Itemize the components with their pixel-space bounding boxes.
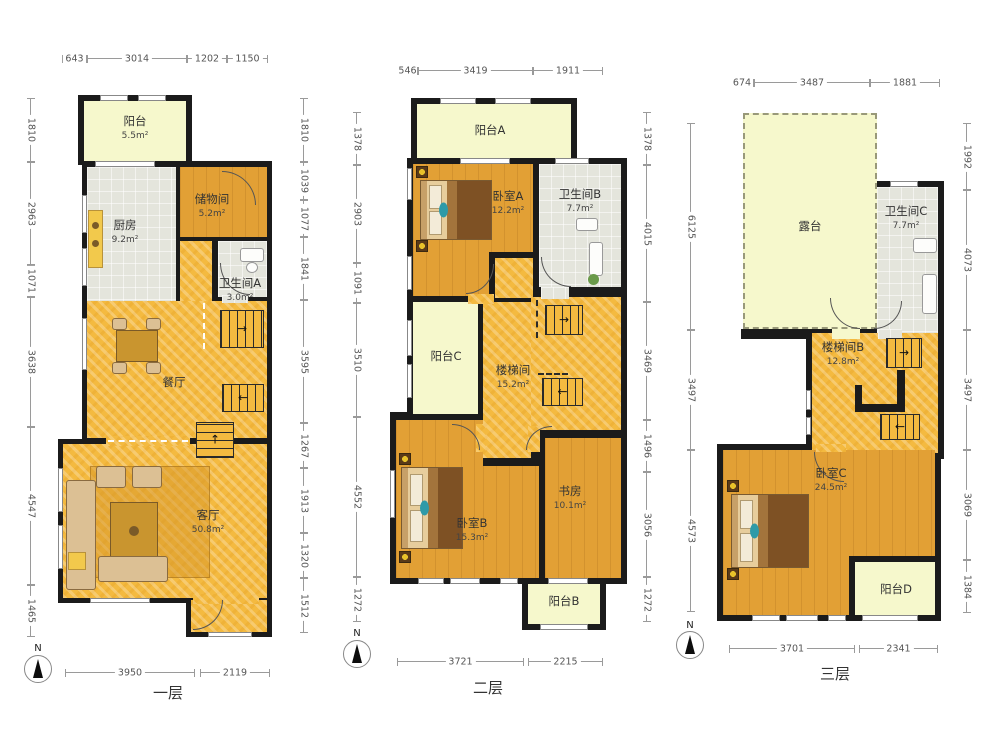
- room-area: 15.2m²: [496, 379, 531, 391]
- dim-value: 1841: [299, 253, 310, 283]
- floor-label-2: 二层: [473, 677, 503, 698]
- dim-value: 3497: [962, 375, 973, 405]
- dimension: 1881: [870, 82, 940, 83]
- dim-value: 1150: [232, 54, 262, 65]
- stairs-icon: →: [886, 338, 922, 368]
- wall-balcony-d-h: [849, 556, 935, 562]
- dimension: 2903: [356, 165, 357, 263]
- pillow-icon: [410, 510, 423, 542]
- bed-accent: [420, 501, 429, 516]
- dim-value: 3469: [642, 346, 653, 376]
- window: [390, 470, 395, 518]
- dim-value: 3595: [299, 346, 310, 376]
- dim-value: 4552: [352, 482, 363, 512]
- window: [407, 364, 412, 398]
- room-area: 7.7m²: [559, 203, 601, 215]
- dimension: 1810: [30, 98, 31, 162]
- dim-value: 1039: [299, 166, 310, 196]
- dimension: 3419: [418, 70, 533, 71]
- dimension: 1512: [303, 578, 304, 633]
- dim-value: 1465: [26, 596, 37, 626]
- window: [500, 578, 518, 584]
- room-name: 客厅: [192, 508, 224, 524]
- dimension: 1465: [30, 585, 31, 637]
- room-label-stairwell-f2: 楼梯间15.2m²: [496, 363, 531, 391]
- dimension: 643: [62, 58, 87, 59]
- dim-value: 3056: [642, 509, 653, 539]
- dim-value: 1272: [352, 584, 363, 614]
- room-label-balcony-b-f2: 阳台B: [549, 594, 580, 610]
- room-label-bath-a-f1: 卫生间A3.0m²: [219, 276, 261, 304]
- dimension: 3014: [87, 58, 187, 59]
- dim-value: 1810: [26, 115, 37, 145]
- wall-balcony-d-v: [849, 556, 855, 615]
- nightstand-icon: [727, 568, 739, 580]
- dim-value: 2119: [220, 668, 250, 679]
- window: [95, 161, 155, 167]
- room-label-terrace-f3: 露台: [799, 219, 822, 235]
- room-label-balcony-f1: 阳台5.5m²: [122, 114, 149, 142]
- dimension: 1039: [303, 162, 304, 200]
- dim-value: 546: [395, 66, 419, 77]
- armchair-icon: [96, 466, 126, 488]
- bed-blanket: [758, 495, 808, 567]
- dim-value: 2903: [352, 199, 363, 229]
- compass-n-label: N: [686, 620, 693, 631]
- dim-value: 1320: [299, 540, 310, 570]
- bed-headboard: [421, 181, 427, 239]
- stairs-arrow: ←: [543, 385, 582, 397]
- room-name: 阳台C: [430, 349, 461, 365]
- dim-value: 1378: [352, 123, 363, 153]
- bed-icon: [401, 467, 463, 549]
- dim-value: 3638: [26, 347, 37, 377]
- dimension: 6125: [690, 123, 691, 330]
- dim-value: 3950: [115, 668, 145, 679]
- compass-needle: [33, 659, 43, 678]
- window: [862, 615, 918, 621]
- dim-value: 1077: [299, 203, 310, 233]
- loveseat-icon: [98, 556, 168, 582]
- dimension: 2215: [528, 661, 603, 662]
- dim-value: 1881: [890, 78, 920, 89]
- dining-chair-icon: [112, 362, 127, 374]
- dimension: 3638: [30, 297, 31, 427]
- room-name: 卧室C: [815, 466, 847, 482]
- dim-value: 1810: [299, 115, 310, 145]
- stairs-icon: →: [220, 310, 264, 348]
- room-area: 15.3m²: [456, 532, 488, 544]
- dim-value: 1913: [299, 485, 310, 515]
- room-label-balcony-a-f2: 阳台A: [475, 123, 506, 139]
- corridor-f1: [180, 241, 212, 301]
- dimension: 1272: [646, 577, 647, 622]
- toilet-icon: [246, 262, 258, 273]
- dimension: 1077: [303, 200, 304, 237]
- dim-value: 1272: [642, 584, 653, 614]
- stairs-arrow: ↑: [197, 433, 233, 445]
- room-label-bath-b-f2: 卫生间B7.7m²: [559, 187, 601, 215]
- room-area: 9.2m²: [112, 234, 139, 246]
- room-name: 阳台A: [475, 123, 506, 139]
- dimension: 1841: [303, 237, 304, 300]
- toilet-icon: [240, 248, 264, 262]
- dim-value: 2963: [26, 198, 37, 228]
- dim-value: 3069: [962, 490, 973, 520]
- room-name: 露台: [799, 219, 822, 235]
- dim-value: 674: [730, 78, 754, 89]
- compass-needle: [352, 644, 362, 663]
- dimension: 3721: [397, 661, 524, 662]
- dimension: 1911: [533, 70, 603, 71]
- stairs-icon: ←: [222, 384, 264, 412]
- dimension: 3056: [646, 472, 647, 577]
- stairs-icon: ↑: [196, 422, 234, 458]
- dimension: 1320: [303, 533, 304, 578]
- dim-value: 1992: [962, 141, 973, 171]
- window: [828, 615, 846, 621]
- room-name: 阳台: [122, 114, 149, 130]
- dim-value: 2341: [883, 644, 913, 655]
- room-name: 储物间: [195, 192, 230, 208]
- room-label-bedroom-b-f2: 卧室B15.3m²: [456, 516, 488, 544]
- dimension: 3595: [303, 300, 304, 423]
- side-table-icon: [68, 552, 86, 570]
- room-label-storage-f1: 储物间5.2m²: [195, 192, 230, 220]
- wall-vestibule-h: [489, 252, 533, 258]
- window: [540, 624, 588, 630]
- opening-bedroom-a: [468, 294, 494, 304]
- bed-headboard: [402, 468, 408, 548]
- bed-headboard: [732, 495, 738, 567]
- dashed-divider: [108, 440, 188, 442]
- plant-icon: [588, 274, 599, 285]
- floor-label-1: 一层: [153, 682, 183, 703]
- room-label-bedroom-c-f3: 卧室C24.5m²: [815, 466, 847, 494]
- room-area: 3.0m²: [219, 292, 261, 304]
- armchair-icon: [132, 466, 162, 488]
- dimension: 1496: [646, 420, 647, 472]
- room-label-balcony-c-f2: 阳台C: [430, 349, 461, 365]
- room-name: 卧室B: [456, 516, 488, 532]
- window: [460, 158, 510, 164]
- dining-chair-icon: [146, 362, 161, 374]
- opening-bedroom-c: [816, 444, 846, 452]
- dimension: 1071: [30, 265, 31, 297]
- room-area: 7.7m²: [885, 220, 928, 232]
- window: [82, 195, 87, 233]
- stairs-arrow: →: [887, 346, 921, 358]
- dining-chair-icon: [112, 318, 127, 330]
- window: [418, 578, 444, 584]
- window: [82, 318, 87, 370]
- room-name: 阳台D: [880, 582, 912, 598]
- dimension: 2119: [200, 672, 270, 673]
- compass-n-label: N: [34, 643, 41, 654]
- bed-accent: [750, 524, 759, 539]
- dim-value: 4547: [26, 491, 37, 521]
- window: [100, 95, 128, 101]
- dimension: 1091: [356, 263, 357, 303]
- room-label-dining-f1: 餐厅: [163, 375, 186, 391]
- room-bedroom-b2-f2: [483, 466, 539, 578]
- window: [806, 417, 811, 435]
- dim-value: 643: [62, 54, 86, 65]
- room-name: 楼梯间B: [822, 340, 864, 356]
- stairs-arrow: →: [221, 322, 263, 334]
- dimension: 4552: [356, 417, 357, 577]
- room-name: 楼梯间: [496, 363, 531, 379]
- window: [208, 632, 252, 637]
- dashed-stair-line: [203, 303, 205, 349]
- stairs-icon: ←: [880, 414, 920, 440]
- dim-value: 1911: [553, 66, 583, 77]
- bath-fixture-icon: [922, 274, 937, 314]
- window: [890, 181, 918, 187]
- dimension: 2341: [859, 648, 938, 649]
- dim-value: 3497: [686, 375, 697, 405]
- dimension: 3469: [646, 302, 647, 420]
- stairs-arrow: ←: [881, 420, 919, 432]
- room-name: 阳台B: [549, 594, 580, 610]
- dimension: 1150: [227, 58, 268, 59]
- stairs-icon: ←: [542, 378, 583, 406]
- window: [138, 95, 166, 101]
- dim-value: 6125: [686, 211, 697, 241]
- sofa-icon: [66, 480, 96, 590]
- room-label-study-f2: 书房10.1m²: [554, 484, 586, 512]
- dimension: 3487: [754, 82, 870, 83]
- bath-fixture-icon: [589, 242, 603, 276]
- wall-corridor-end: [483, 458, 531, 466]
- stairs-icon: →: [545, 305, 583, 335]
- room-label-living-f1: 客厅50.8m²: [192, 508, 224, 536]
- room-label-bedroom-a-f2: 卧室A12.2m²: [492, 189, 524, 217]
- window: [555, 158, 589, 164]
- room-name: 厨房: [112, 218, 139, 234]
- window: [495, 98, 531, 104]
- room-label-balcony-d-f3: 阳台D: [880, 582, 912, 598]
- stove-burner-icon: [92, 240, 99, 247]
- room-label-stairwell-b-f3: 楼梯间B12.8m²: [822, 340, 864, 368]
- nightstand-icon: [416, 166, 428, 178]
- dimension: 1384: [966, 560, 967, 613]
- kitchen-counter-icon: [88, 210, 103, 268]
- room-area: 12.2m²: [492, 205, 524, 217]
- nightstand-icon: [399, 453, 411, 465]
- room-label-kitchen-f1: 厨房9.2m²: [112, 218, 139, 246]
- nightstand-icon: [727, 480, 739, 492]
- window: [548, 578, 588, 584]
- dimension: 4015: [646, 165, 647, 302]
- room-name: 卫生间A: [219, 276, 261, 292]
- dim-value: 4015: [642, 218, 653, 248]
- window: [407, 256, 412, 290]
- dining-table-icon: [116, 330, 158, 362]
- dim-value: 1267: [299, 430, 310, 460]
- dim-value: 3510: [352, 345, 363, 375]
- room-name: 卫生间C: [885, 204, 928, 220]
- compass-icon: [343, 640, 371, 668]
- room-area: 10.1m²: [554, 500, 586, 512]
- dim-value: 3419: [460, 66, 490, 77]
- dimension: 3497: [690, 330, 691, 450]
- window: [407, 168, 412, 200]
- dimension: 1378: [356, 112, 357, 165]
- dimension: 3497: [966, 330, 967, 450]
- dashed-stair-line: [536, 300, 538, 338]
- dim-value: 1202: [192, 54, 222, 65]
- dim-value: 4573: [686, 516, 697, 546]
- nightstand-icon: [416, 240, 428, 252]
- dimension: 4547: [30, 427, 31, 585]
- dimension: 4073: [966, 190, 967, 330]
- dimension: 1992: [966, 123, 967, 190]
- vestibule-f2: [495, 258, 533, 298]
- washbasin-icon: [913, 238, 937, 253]
- dimension: 1272: [356, 577, 357, 622]
- room-area: 12.8m²: [822, 356, 864, 368]
- room-area: 5.2m²: [195, 208, 230, 220]
- dim-value: 1091: [352, 268, 363, 298]
- opening-bath-b: [541, 287, 569, 299]
- bed-accent: [439, 203, 448, 218]
- bed-icon: [420, 180, 492, 240]
- room-area: 24.5m²: [815, 482, 847, 494]
- dimension: 1267: [303, 423, 304, 468]
- dim-value: 1071: [26, 266, 37, 296]
- window: [440, 98, 476, 104]
- dimension: 3069: [966, 450, 967, 560]
- window: [806, 390, 811, 410]
- dim-value: 4073: [962, 245, 973, 275]
- dim-value: 3721: [445, 657, 475, 668]
- room-name: 卫生间B: [559, 187, 601, 203]
- window: [90, 598, 150, 603]
- dining-chair-icon: [146, 318, 161, 330]
- room-name: 餐厅: [163, 375, 186, 391]
- compass-icon: [24, 655, 52, 683]
- window: [407, 320, 412, 356]
- dim-value: 3014: [122, 54, 152, 65]
- room-label-bath-c-f3: 卫生间C7.7m²: [885, 204, 928, 232]
- dimension: 3510: [356, 303, 357, 417]
- dimension: 1202: [187, 58, 227, 59]
- dimension: 3950: [65, 672, 195, 673]
- room-name: 书房: [554, 484, 586, 500]
- dimension: 546: [397, 70, 418, 71]
- window: [786, 615, 818, 621]
- dimension: 4573: [690, 450, 691, 612]
- opening-terrace: [832, 329, 860, 339]
- washbasin-icon: [576, 218, 598, 231]
- dimension: 1913: [303, 468, 304, 533]
- bed-blanket: [447, 181, 491, 239]
- dim-value: 2215: [550, 657, 580, 668]
- decor-icon: [129, 526, 139, 536]
- dimension: 2963: [30, 162, 31, 265]
- dashed-stair-line: [538, 373, 568, 375]
- nightstand-icon: [399, 551, 411, 563]
- dim-value: 1496: [642, 431, 653, 461]
- dimension: 1378: [646, 112, 647, 165]
- dim-value: 3487: [797, 78, 827, 89]
- stairs-arrow: ←: [223, 391, 263, 403]
- stove-burner-icon: [92, 222, 99, 229]
- compass-n-label: N: [353, 628, 360, 639]
- stairs-arrow: →: [546, 313, 582, 325]
- compass-needle: [685, 635, 695, 654]
- window: [82, 248, 87, 286]
- room-name: 卧室A: [492, 189, 524, 205]
- dimension: 674: [730, 82, 754, 83]
- dim-value: 1512: [299, 590, 310, 620]
- dimension: 3701: [729, 648, 855, 649]
- dim-value: 1378: [642, 123, 653, 153]
- compass-icon: [676, 631, 704, 659]
- dimension: 1810: [303, 98, 304, 162]
- room-area: 5.5m²: [122, 130, 149, 142]
- wall-stair-core: [897, 370, 905, 412]
- window: [752, 615, 780, 621]
- dim-value: 3701: [777, 644, 807, 655]
- window: [450, 578, 480, 584]
- dim-value: 1384: [962, 571, 973, 601]
- window: [58, 525, 63, 569]
- window: [58, 468, 63, 512]
- room-area: 50.8m²: [192, 524, 224, 536]
- floor-label-3: 三层: [820, 663, 850, 684]
- bed-icon: [731, 494, 809, 568]
